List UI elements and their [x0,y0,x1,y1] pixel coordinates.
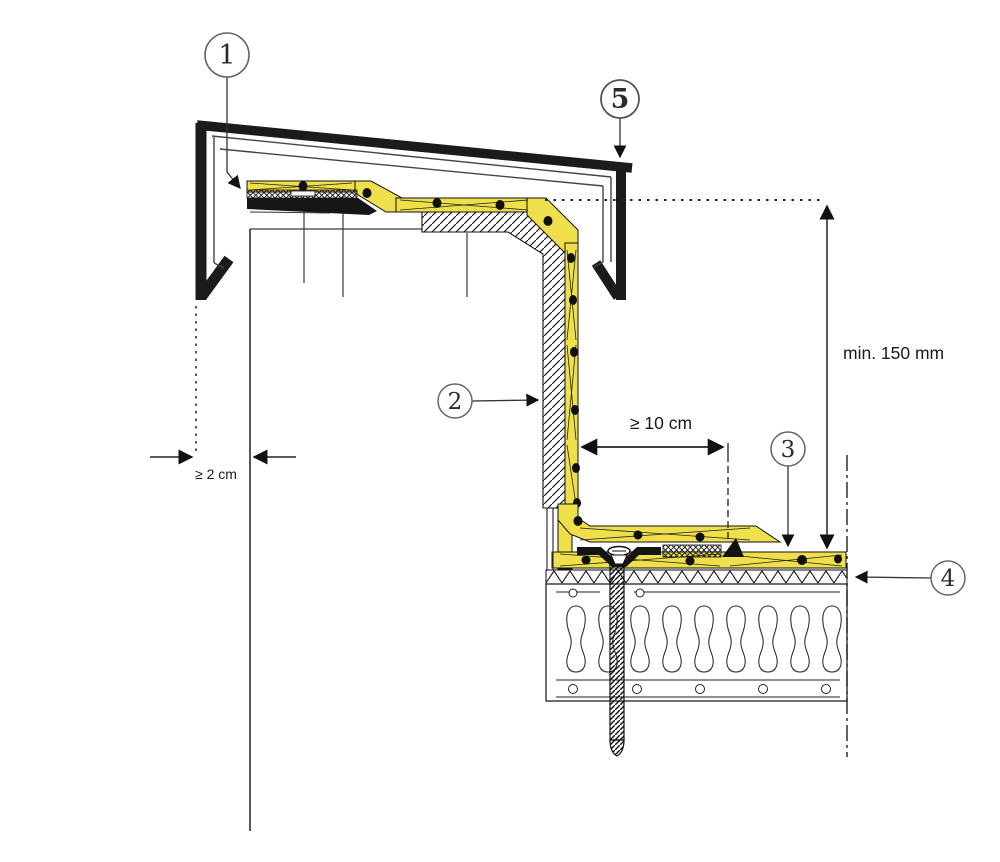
screw-tip [610,740,624,756]
callout-number-5: 5 [611,84,630,115]
wall-reference-lines [250,196,467,831]
deck-fastener [636,589,644,597]
leader-2 [472,400,538,401]
leader-4 [856,577,931,578]
separation-layer-zigzag [546,570,847,584]
dimension-lines [150,200,827,548]
label-2-cm: ≥ 2 cm [195,466,237,482]
callout-number-3: 3 [781,437,796,463]
coping-right-drip-kick [596,263,618,297]
technical-drawing-canvas: 1 2 3 4 5 min. 150 mm ≥ 10 cm ≥ 2 cm [0,0,1000,862]
deck-bottom-fasteners [569,685,831,694]
construction-detail-svg: 1 2 3 4 5 min. 150 mm ≥ 10 cm ≥ 2 cm [0,0,1000,862]
mineral-wool-insulation [560,600,845,676]
screw-shaft [610,562,624,740]
parapet-masonry-hatch [422,210,565,508]
callout-number-4: 4 [941,566,956,592]
callout-number-1: 1 [218,40,235,71]
label-min-150-mm: min. 150 mm [843,343,944,363]
crosshatch-strip-roof [663,545,721,557]
base-junction [552,504,846,569]
roof-deck-assembly [546,455,847,757]
callout-number-2: 2 [448,389,463,415]
label-10-cm: ≥ 10 cm [630,413,692,433]
callout-bubbles: 1 2 3 4 5 [205,33,965,595]
fixing-plate [291,191,315,196]
flashing-band-upper [558,504,780,542]
deck-fastener [569,589,577,597]
coping-top-plate [197,125,632,168]
